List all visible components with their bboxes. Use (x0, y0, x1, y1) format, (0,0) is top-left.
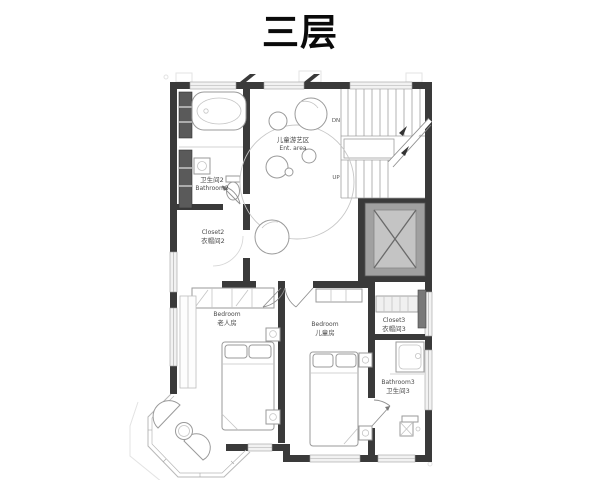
nightstand (359, 353, 372, 367)
wardrobe-closet3 (376, 296, 418, 312)
bedroom1-label-en: Bedroom (213, 311, 240, 318)
stairs-up-label: UP (332, 175, 340, 181)
nightstand (359, 426, 372, 440)
armchair (153, 401, 180, 428)
bedroom1-label-cn: 老人房 (217, 318, 237, 327)
bedroom2-label-en: Bedroom (311, 321, 338, 328)
nightstand (266, 328, 280, 341)
stairs-down-label: DN (332, 118, 340, 124)
elevator-shaft (365, 203, 425, 276)
bedroom2-furniture (285, 288, 372, 446)
closet2-label-en: Closet2 (202, 229, 225, 236)
bedroom2-label-cn: 儿童房 (315, 328, 335, 337)
sink (194, 158, 210, 174)
bathroom2-label-en: Bathroom2 (195, 185, 228, 192)
floor-plan-page: 三层 (0, 0, 600, 480)
cabinet (418, 290, 426, 328)
dresser-bedroom2 (316, 289, 362, 302)
shower (396, 342, 424, 372)
staircase: DN UP (332, 89, 431, 198)
bathroom3-door-arc (374, 400, 390, 406)
side-table (176, 423, 193, 440)
bathroom3-label-cn: 卫生间3 (386, 386, 410, 395)
floor-plan: DN UP (0, 0, 600, 480)
bedroom2-door-arc (285, 288, 296, 307)
wardrobe-bedroom1 (192, 288, 274, 308)
closet3-label-cn: 衣帽间3 (382, 324, 406, 333)
bedroom1-furniture (180, 288, 285, 430)
play-area-label-en: Ent. area (279, 145, 306, 152)
nightstand (266, 410, 280, 424)
closet2-label-cn: 衣帽间2 (201, 236, 225, 245)
bathroom2-label-cn: 卫生间2 (200, 175, 224, 184)
play-area-label-cn: 儿童游艺区 (277, 135, 310, 144)
closet3-label-en: Closet3 (383, 317, 406, 324)
bathroom3-label-en: Bathroom3 (381, 379, 414, 386)
